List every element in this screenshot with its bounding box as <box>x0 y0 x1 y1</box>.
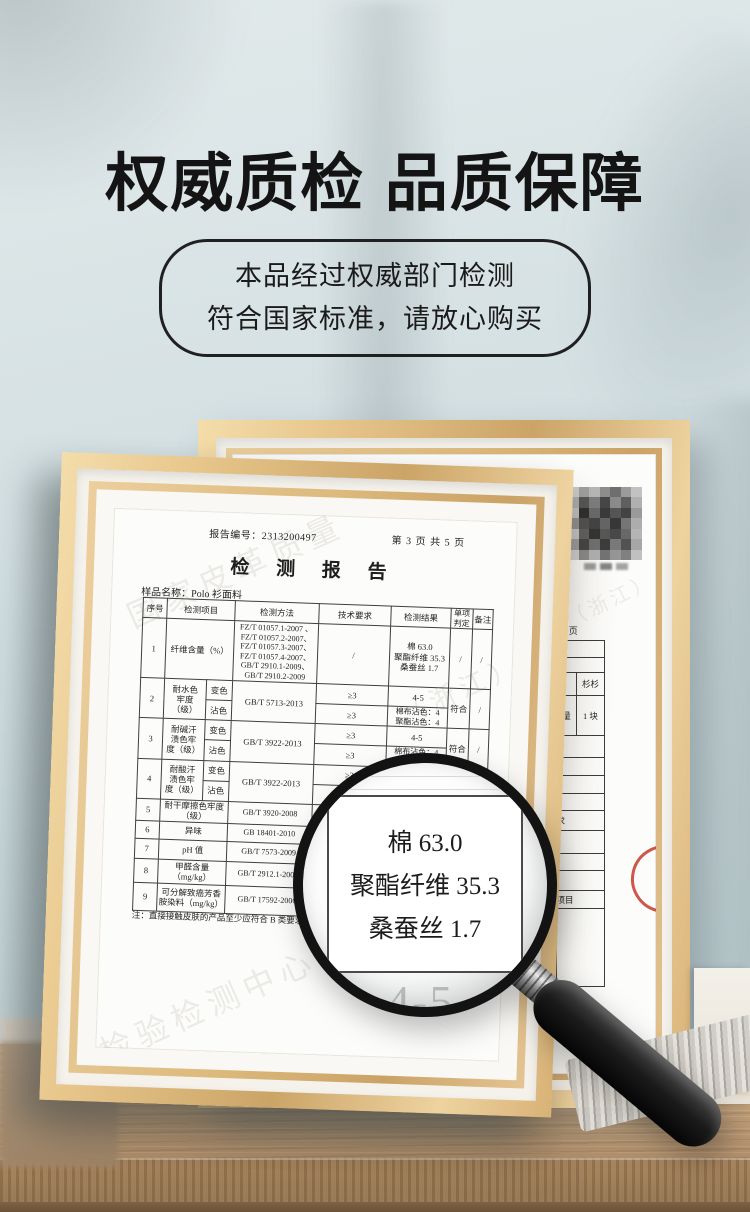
cell-remark: / <box>470 629 492 690</box>
cell-item: 耐碱汗 渍色牢 度（级） <box>162 719 205 761</box>
cell-requirement: ≥3 <box>316 684 389 707</box>
cell-subitem: 沾色 <box>205 700 232 721</box>
table-row <box>557 776 604 794</box>
cell-requirement: / <box>317 624 391 686</box>
cell-item: 耐酸汗 渍色牢 度（级） <box>160 759 203 800</box>
table-row <box>557 854 604 871</box>
cell-method: GB/T 3922-2013 <box>230 721 315 764</box>
red-seal-stamp: 质检 <box>618 832 656 926</box>
header-item: 检测项目 <box>167 598 236 621</box>
badge-line-2: 符合国家标准，请放心购买 <box>207 298 543 341</box>
brand-cell: 杉杉 <box>577 678 604 690</box>
page-title: 权威质检 品质保障 <box>0 133 750 224</box>
promo-banner: 权威质检 品质保障 本品经过权威部门检测 符合国家标准，请放心购买 （浙江） 5… <box>0 0 750 1212</box>
lens-refraction-line <box>331 789 519 790</box>
fiber-cotton: 棉 63.0 <box>387 823 462 859</box>
table-row <box>557 758 604 776</box>
cell-no: 9 <box>133 882 158 911</box>
cell-no: 2 <box>139 678 164 719</box>
cell-item: 可分解致癌芳香 胺染料（mg/kg） <box>157 883 226 913</box>
header-remark: 备注 <box>473 609 494 630</box>
cell-no: 5 <box>136 798 161 821</box>
watermark-text: 检验检测中心 <box>95 936 324 1062</box>
cell-no: 6 <box>135 820 160 839</box>
cell-result: 4-5 <box>388 686 449 708</box>
censored-caption <box>584 563 628 570</box>
magnifier-lens: 棉 63.0 聚酯纤维 35.3 桑蚕丝 1.7 4-5 <box>293 753 557 1017</box>
guarantee-badge: 本品经过权威部门检测 符合国家标准，请放心购买 <box>159 239 591 357</box>
cell-method: GB/T 5713-2013 <box>231 681 316 724</box>
cell-verdict: 符合 <box>447 688 470 729</box>
cell-item: 耐干摩擦色牢度 （级） <box>160 799 229 823</box>
cell-item: 纤维含量（%） <box>165 618 235 680</box>
cell-no: 7 <box>134 838 159 859</box>
cell-requirement: ≥3 <box>314 724 387 747</box>
back-watermark: （浙江） <box>561 564 656 632</box>
report-number: 报告编号：2313200497 <box>209 525 317 544</box>
header-verdict: 单项 判定 <box>451 608 474 629</box>
zoomed-result-cell: 棉 63.0 聚酯纤维 35.3 桑蚕丝 1.7 <box>327 795 523 973</box>
cell-requirement: ≥3 <box>315 704 388 727</box>
cell-remark: / <box>469 689 490 730</box>
cell-result: 棉 63.0 聚酯纤维 35.3 桑蚕丝 1.7 <box>389 626 451 688</box>
cell-result: 4-5 <box>386 726 447 748</box>
cell-method: GB/T 3922-2013 <box>228 761 313 804</box>
table-row <box>557 909 604 986</box>
fiber-polyester: 聚酯纤维 35.3 <box>350 866 500 902</box>
cell-item: 异味 <box>159 821 228 841</box>
censored-logo-mosaic <box>568 487 642 560</box>
cell-subitem: 变色 <box>206 680 233 701</box>
header-requirement: 技术要求 <box>319 604 392 627</box>
cell-no: 3 <box>138 718 163 759</box>
cell-subitem: 沾色 <box>202 780 229 801</box>
cell-subitem: 变色 <box>205 720 232 741</box>
cell-method: FZ/T 01057.1-2007 、 FZ/T 01057.2-2007、 F… <box>233 621 319 684</box>
table-row <box>557 794 604 811</box>
cell-verdict: / <box>448 628 472 689</box>
badge-line-1: 本品经过权威部门检测 <box>207 255 543 298</box>
cell-no: 8 <box>134 858 159 883</box>
cell-item: 甲醛含量 （mg/kg） <box>158 859 227 885</box>
cell-no: 1 <box>141 618 167 679</box>
cell-method: GB/T 3920-2008 <box>228 801 313 826</box>
fiber-silk: 桑蚕丝 1.7 <box>369 909 482 945</box>
table-underside <box>0 1202 750 1212</box>
report-page-info: 第 3 页 共 5 页 <box>391 532 465 550</box>
qty-cell: 1 块 <box>577 710 604 722</box>
cell-subitem: 沾色 <box>204 740 231 761</box>
zoomed-underlay-value: 4-5 <box>387 975 454 1017</box>
header-no: 序号 <box>143 597 168 618</box>
cell-result: 棉布沾色：4 聚酯沾色：4 <box>387 706 448 728</box>
cell-no: 4 <box>136 758 161 799</box>
cell-item: 耐水色 牢度 （级） <box>163 678 206 720</box>
lens-refraction-line <box>331 776 519 777</box>
cell-item: pH 值 <box>158 839 227 861</box>
header-result: 检测结果 <box>391 606 452 628</box>
cell-subitem: 变色 <box>203 760 230 781</box>
